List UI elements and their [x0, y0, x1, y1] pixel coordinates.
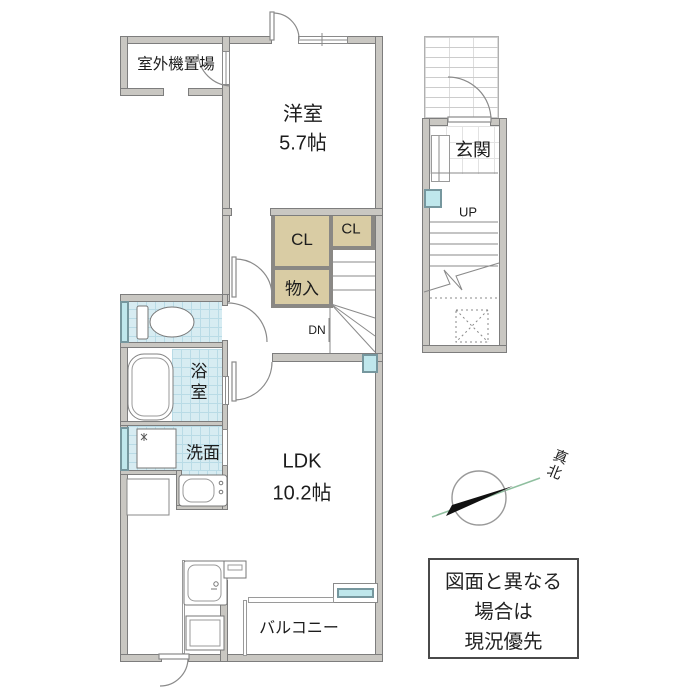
toilet-room-floor [128, 300, 222, 344]
window-ldk-right [362, 354, 378, 373]
western-room-label: 洋室 [283, 98, 323, 127]
hall-door-arc [235, 259, 272, 296]
balcony-railing [248, 597, 334, 603]
balcony-left-lip [243, 600, 247, 656]
bathtub-inner [132, 358, 169, 416]
western-top-door-arc [273, 13, 299, 39]
balcony-label: バルコニー [259, 614, 339, 638]
ldk-door-arc [234, 362, 272, 400]
closet-small-label: CL [341, 221, 360, 238]
shoe-cabinet [431, 135, 450, 182]
true-north-label: 真北 [541, 445, 573, 483]
wall-main-right [375, 36, 383, 662]
north-line [432, 478, 540, 517]
floor-plan: 室外機置場 洋室 5.7帖 CL CL 物入 DN 玄関 UP 浴室 洗面 LD… [0, 0, 700, 700]
storage-label: 物入 [285, 275, 319, 300]
kitchen-sink [188, 565, 221, 601]
kitchen-exit-door-leaf [159, 654, 189, 659]
wall-leftcol-right-1 [222, 294, 228, 306]
wall-entry-bottom [422, 345, 507, 353]
wall-vanity-bottom [176, 505, 228, 510]
wall-outdoorunit-bottom-a [120, 88, 164, 96]
ldk-door-leaf [232, 362, 236, 401]
compass [432, 471, 540, 525]
stairs-up-label: UP [459, 205, 477, 220]
stairs-break-line [424, 263, 499, 292]
wall-bottom-b [188, 654, 383, 662]
wall-bottom-a [120, 654, 162, 662]
wall-vanity-left [176, 470, 182, 510]
kitchen-faucet [214, 582, 218, 586]
wall-wash-bottom-left [120, 470, 182, 475]
stairs-down-label: DN [308, 323, 325, 337]
wall-toilet-top [120, 294, 230, 302]
washroom-floor-ext [180, 470, 222, 506]
kitchen-counter-edge [182, 560, 185, 654]
window-toilet [120, 301, 129, 343]
range-hood-vent [228, 565, 242, 570]
stairs-down [329, 250, 375, 353]
wall-kitchen-balcony [220, 580, 228, 662]
bathtub [128, 354, 173, 420]
wall-leftcol-right-3 [222, 404, 228, 430]
disclaimer-line-3: 現況優先 [430, 627, 577, 657]
wash-label: 洗面 [186, 439, 220, 464]
entrance-label: 玄関 [455, 136, 491, 162]
wall-outdoorunit-left [120, 36, 128, 96]
washroom-sliding-door [222, 429, 228, 466]
wall-entry-right [499, 118, 507, 353]
bath-label: 浴室 [189, 361, 209, 403]
wall-leftcol-right-4 [222, 465, 228, 510]
entry-porch-bricks [424, 36, 499, 120]
closet-main-label: CL [291, 230, 313, 250]
ldk-size: 10.2帖 [273, 477, 332, 506]
wall-western-bottom-a [222, 208, 232, 216]
stove [186, 616, 224, 650]
compass-needle [446, 486, 513, 516]
toilet-door-arc [228, 303, 267, 342]
ldk-label: LDK [283, 451, 322, 474]
refrigerator-space [127, 479, 169, 515]
outdoor-unit-label: 室外機置場 [137, 52, 215, 74]
disclaimer-line-1: 図面と異なる [430, 567, 577, 597]
disclaimer-line-2: 場合は [430, 597, 577, 627]
bath-door [222, 376, 229, 405]
kitchen-exit-door-arc [160, 658, 188, 686]
window-western-top [298, 36, 348, 44]
wall-bath-bottom [120, 421, 228, 426]
range-hood [224, 561, 246, 578]
wall-main-left-lower [120, 294, 128, 662]
wall-western-bottom-b [270, 208, 383, 216]
window-balcony [337, 588, 374, 598]
window-washroom [120, 427, 129, 471]
window-western-left [222, 51, 230, 85]
western-room-size: 5.7帖 [279, 127, 327, 156]
hall-door-leaf [232, 257, 236, 297]
wall-toilet-bottom [120, 342, 228, 348]
wall-entry-left [422, 118, 430, 353]
window-entry-left [424, 189, 442, 208]
compass-circle [452, 471, 506, 525]
disclaimer-box: 図面と異なる 場合は 現況優先 [428, 558, 579, 659]
stove-inner [190, 620, 220, 646]
wall-leftcol-right-2 [222, 340, 228, 378]
wall-top-a [120, 36, 272, 44]
